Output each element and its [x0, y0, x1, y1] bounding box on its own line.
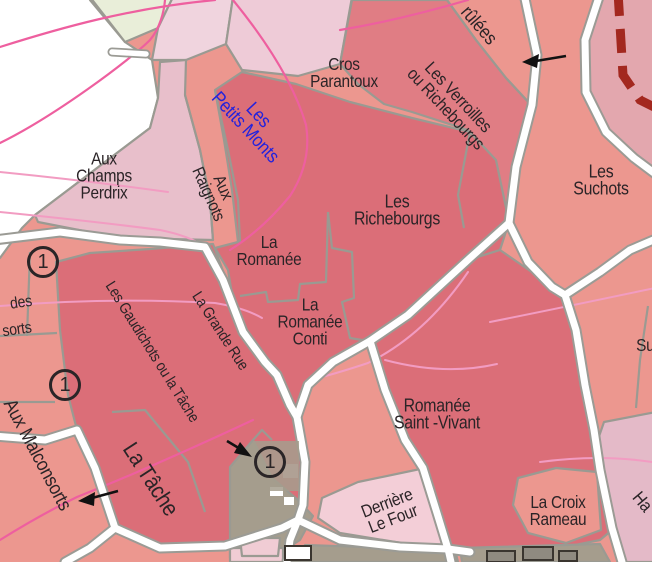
label-les-suchots-2-partial: Les Suchots: [636, 320, 652, 354]
label-la-romanee: La Romanée: [237, 234, 302, 268]
map-marker-3-number: 1: [264, 451, 275, 474]
label-la-croix-rameau: La Croix Rameau: [530, 494, 587, 528]
label-aux-champs-perdrix: Aux Champs Perdrix: [76, 151, 132, 202]
map-canvas[interactable]: rûlées Cros Parantoux Les Petits Monts L…: [0, 0, 652, 562]
map-marker-2: 1: [49, 369, 81, 401]
map-marker-1: 1: [27, 246, 59, 278]
label-les-suchots: Les Suchots: [573, 164, 628, 199]
label-la-romanee-conti: La Romanée Conti: [278, 297, 343, 348]
label-des-partial: des: [9, 294, 33, 312]
label-romanee-saint-vivant: Romanée Saint -Vivant: [394, 398, 480, 433]
label-cros-parantoux: Cros Parantoux: [310, 56, 378, 90]
map-marker-2-number: 1: [59, 374, 70, 397]
map-marker-1-number: 1: [37, 251, 48, 274]
map-marker-3: 1: [254, 446, 286, 478]
label-les-richebourgs: Les Richebourgs: [354, 194, 440, 229]
